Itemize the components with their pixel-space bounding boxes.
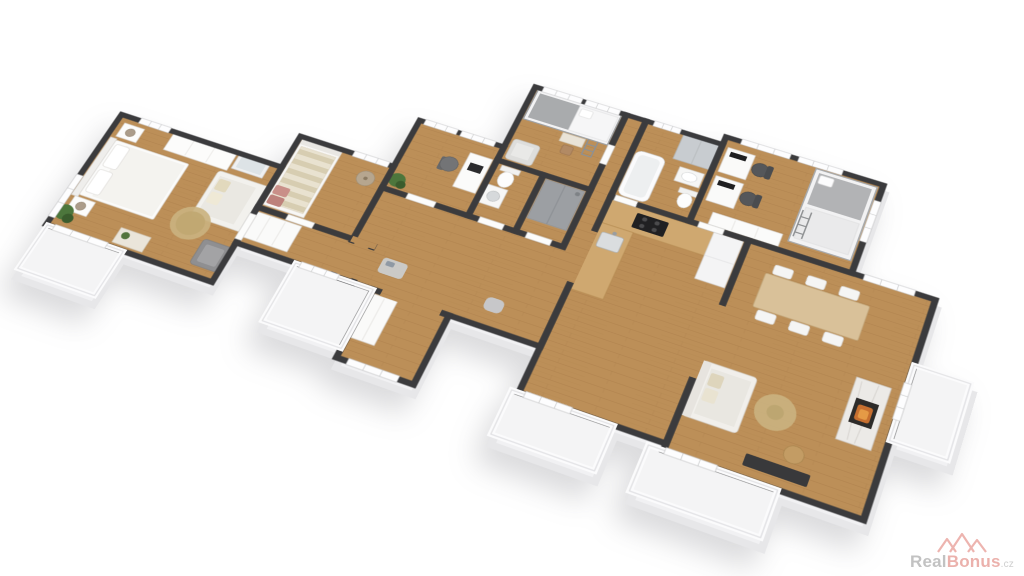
watermark-tld: .cz	[1001, 559, 1014, 570]
watermark-brand-red: Bonus	[947, 552, 1001, 571]
watermark-brand-gray: Real	[910, 552, 947, 571]
realbonus-logo-icon	[936, 531, 988, 553]
watermark-text: RealBonus.cz	[910, 553, 1014, 570]
floor-plan-svg	[0, 0, 1024, 576]
floor-plan-render	[0, 0, 1024, 576]
watermark: RealBonus.cz	[910, 531, 1014, 570]
floor-plan-3d-tilt	[0, 0, 1024, 576]
floor-plan-page: RealBonus.cz	[0, 0, 1024, 576]
floor-plan-root	[5, 0, 1024, 576]
